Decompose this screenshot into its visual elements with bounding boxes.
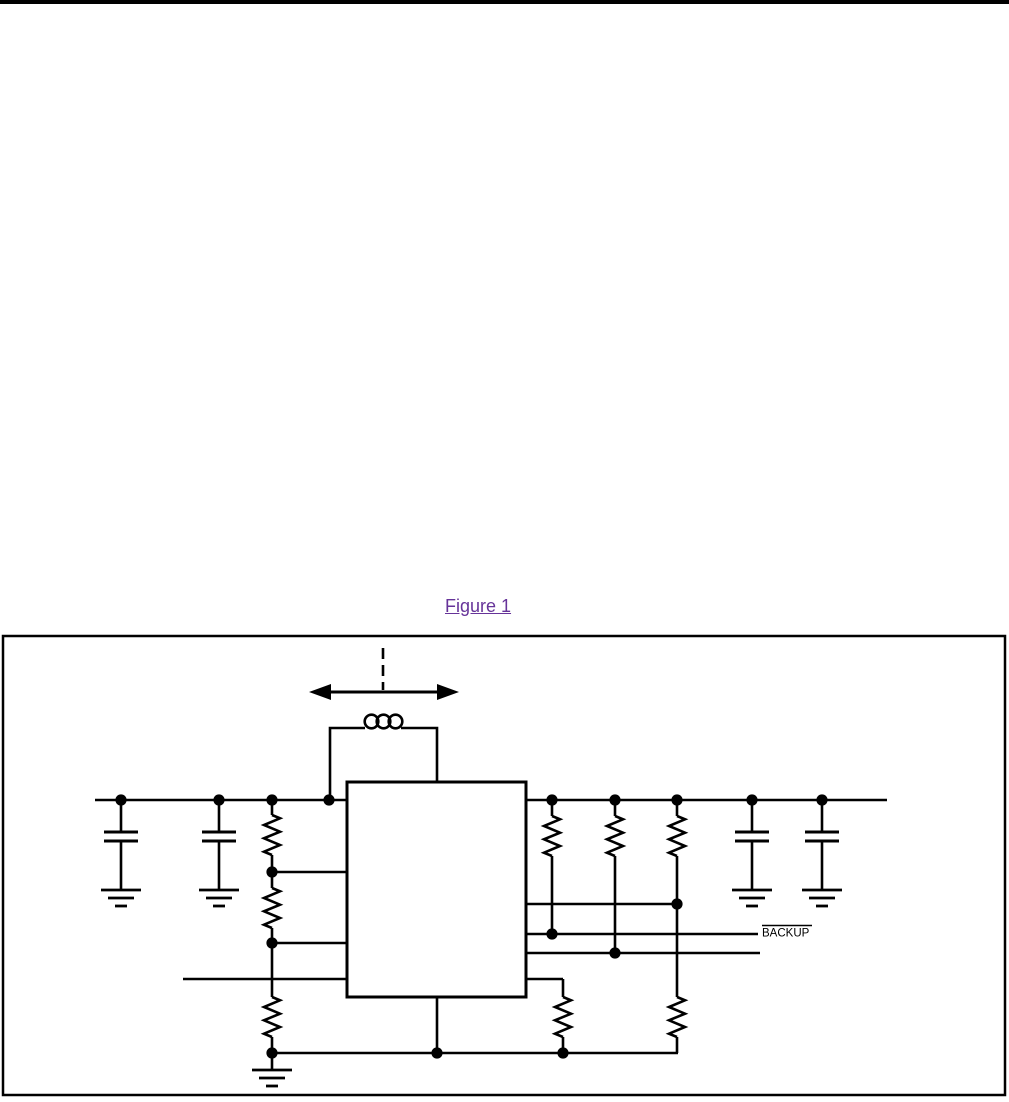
pullup-resistor-2 [607, 800, 623, 953]
pullup-resistor-1 [544, 800, 560, 934]
junction-dot [266, 1047, 277, 1058]
junction-dot [266, 937, 277, 948]
junction-dot [746, 794, 757, 805]
junction-dot [266, 866, 277, 877]
pullup-resistor-3 [669, 800, 685, 1053]
junction-dot [671, 794, 682, 805]
junction-dot [431, 1047, 442, 1058]
junction-dot [115, 794, 126, 805]
ground-icon [101, 890, 141, 906]
resistor-icon [264, 997, 280, 1037]
capacitor-icon [735, 832, 769, 841]
junction-dot [816, 794, 827, 805]
resistor-icon [264, 815, 280, 855]
bypass-capacitor-1 [101, 800, 141, 906]
double-headed-arrow-icon [309, 648, 459, 700]
bypass-capacitor-4 [802, 800, 842, 906]
resistor-icon [264, 888, 280, 928]
resistor-icon [669, 816, 685, 856]
ground-icon [802, 890, 842, 906]
ic-block [347, 782, 526, 997]
junction-dot [546, 794, 557, 805]
bypass-capacitor-2 [199, 800, 239, 906]
resistor-icon [544, 816, 560, 856]
resistor-icon [669, 997, 685, 1037]
junction-dot [213, 794, 224, 805]
ground-icon [732, 890, 772, 906]
ground-icon [199, 890, 239, 906]
junction-dot [266, 794, 277, 805]
bypass-capacitor-3 [732, 800, 772, 906]
junction-dot [546, 928, 557, 939]
backup-label: BACKUP [762, 928, 810, 940]
junction-dot [323, 794, 334, 805]
capacitor-icon [104, 832, 138, 841]
resistor-icon [555, 997, 571, 1037]
right-bottom-resistor [526, 979, 571, 1053]
ground-icon [252, 1070, 292, 1086]
schematic-canvas: BACKUP [0, 0, 1009, 1102]
left-resistor-divider [252, 800, 347, 1086]
resistor-icon [607, 816, 623, 856]
junction-dot [557, 1047, 568, 1058]
junction-dot [671, 898, 682, 909]
junction-dot [609, 947, 620, 958]
junction-dot [609, 794, 620, 805]
capacitor-icon [202, 832, 236, 841]
backup-label-group: BACKUP [762, 926, 812, 940]
capacitor-icon [805, 832, 839, 841]
